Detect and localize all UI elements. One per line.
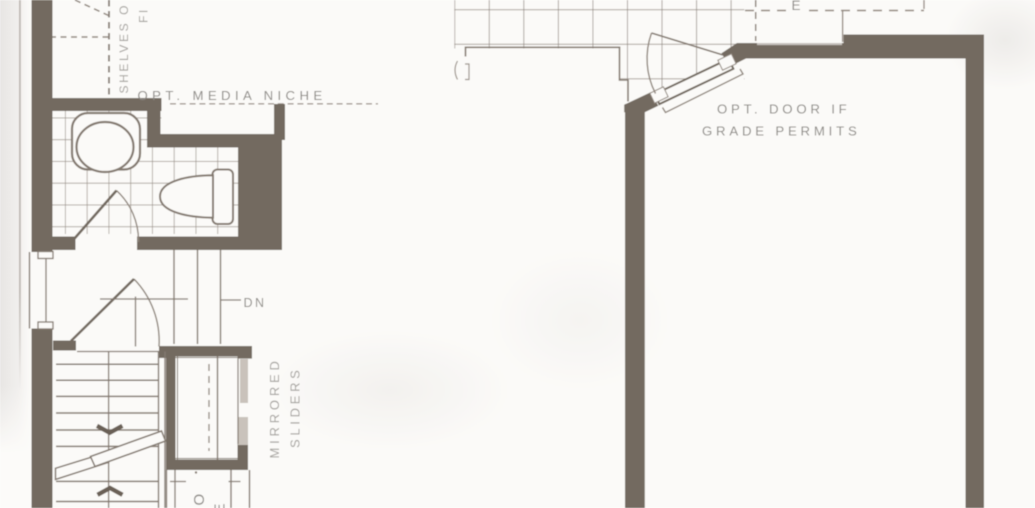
svg-text:E: E (792, 0, 801, 13)
svg-text:GRADE PERMITS: GRADE PERMITS (702, 124, 861, 139)
svg-text:OPT. DOOR IF: OPT. DOOR IF (717, 102, 851, 117)
svg-text:SHELVES O: SHELVES O (117, 3, 131, 94)
svg-text:OPT. MEDIA NICHE: OPT. MEDIA NICHE (138, 88, 327, 103)
svg-text:MIRRORED: MIRRORED (267, 357, 282, 458)
svg-text:FI: FI (137, 7, 151, 23)
svg-text:DN: DN (244, 296, 267, 310)
svg-text:SLIDERS: SLIDERS (288, 366, 303, 448)
svg-text:E: E (212, 503, 229, 508)
svg-text:O: O (191, 494, 208, 506)
